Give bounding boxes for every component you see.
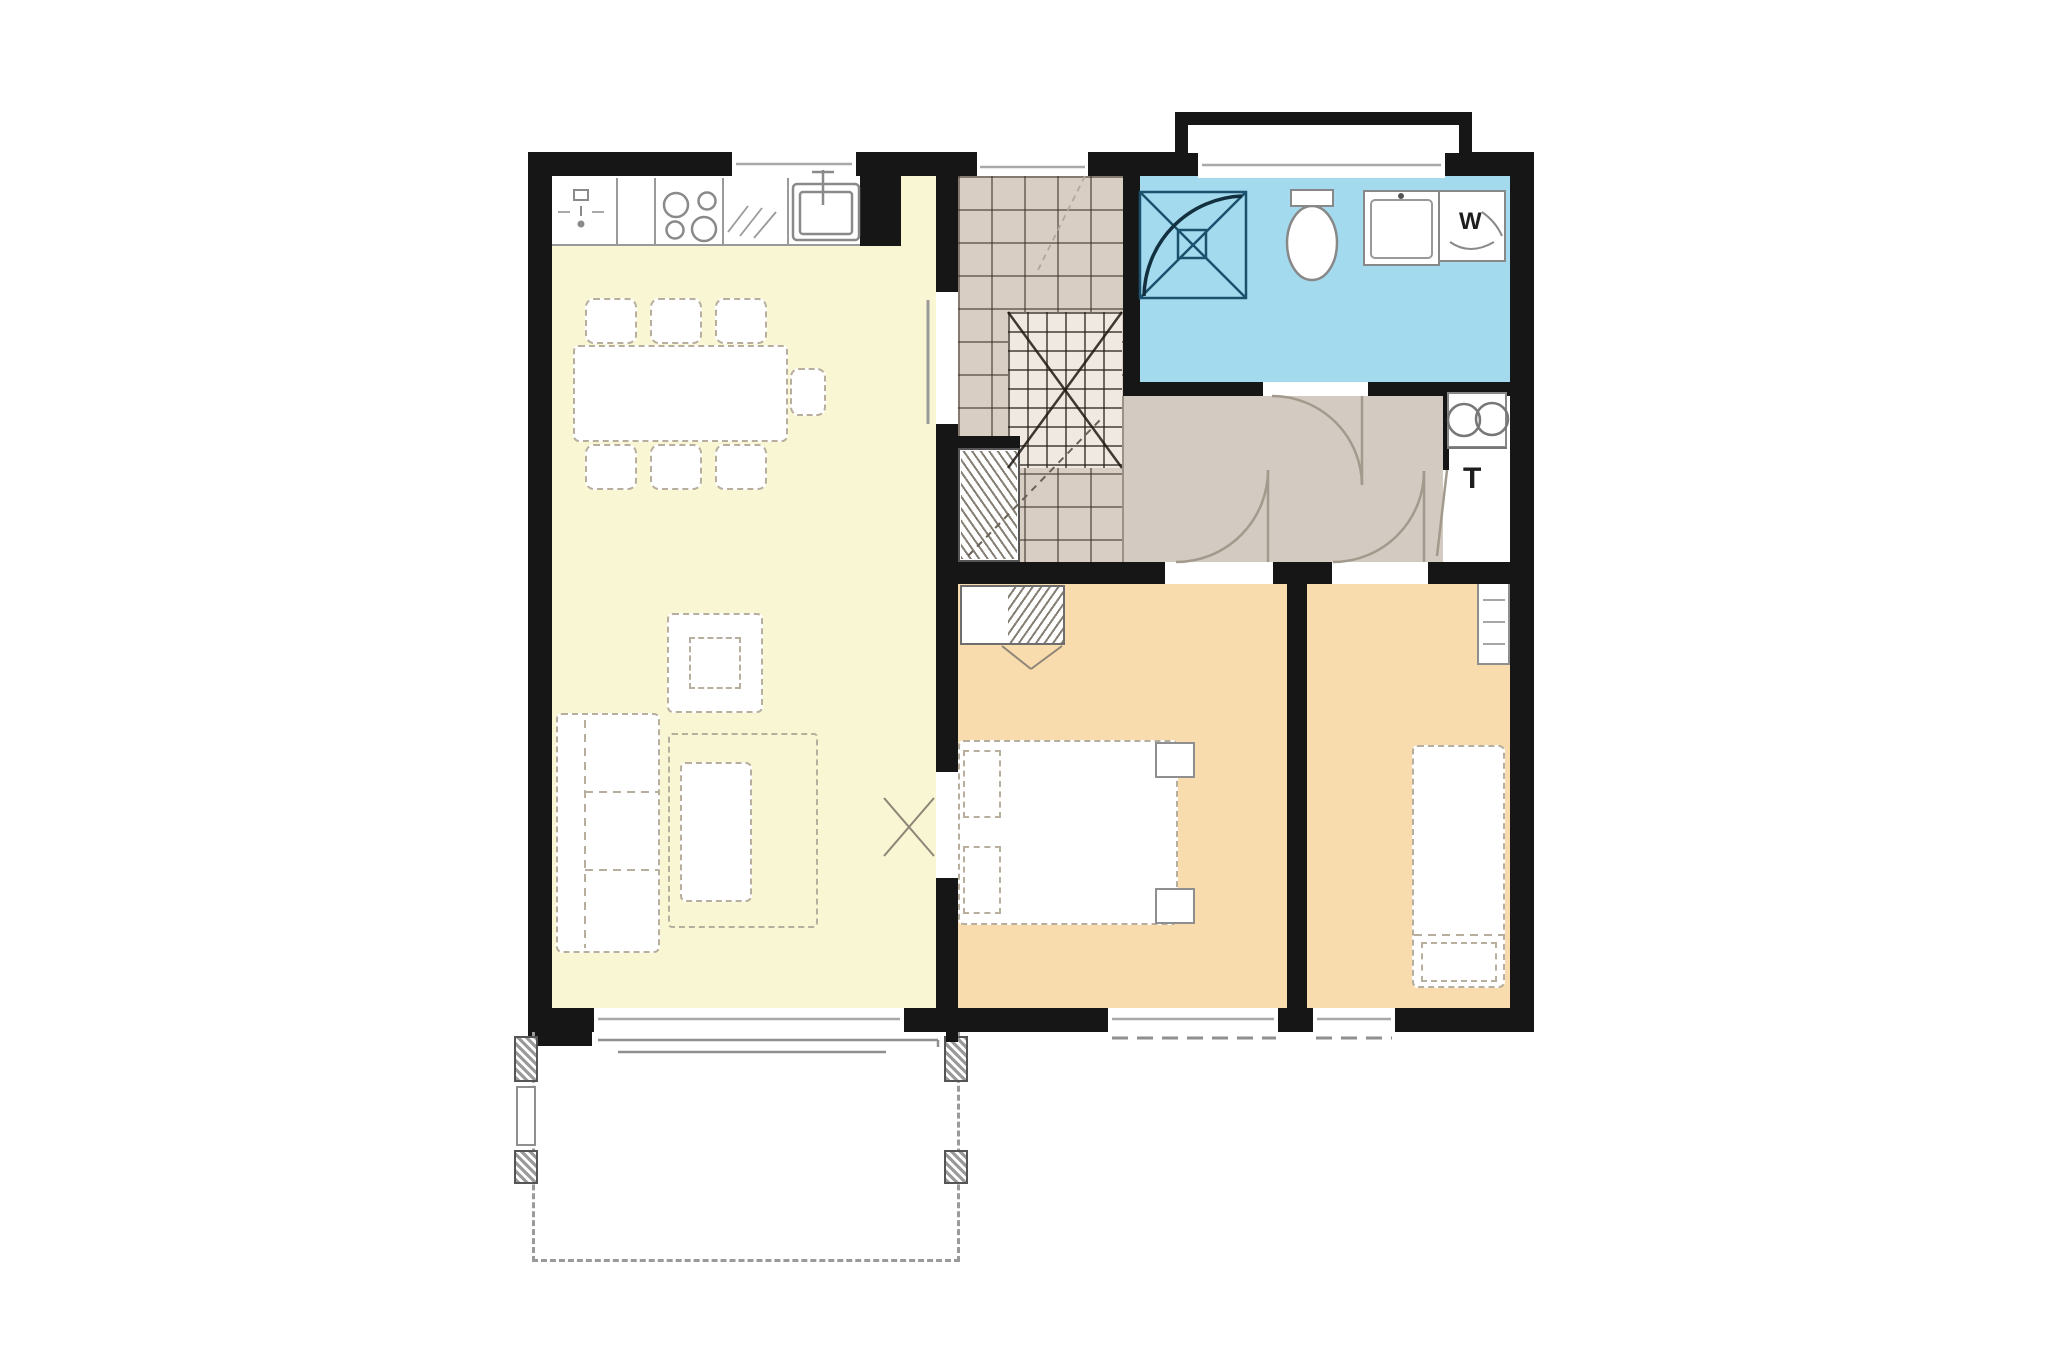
armchair-cushion	[689, 637, 741, 689]
terrace-post	[514, 1150, 538, 1184]
living-terrace-window	[594, 1008, 904, 1032]
bed-pillow	[1421, 942, 1497, 982]
dining-chair	[585, 298, 637, 344]
bedroom2-window	[1313, 1008, 1395, 1032]
vanity-sink	[1363, 190, 1440, 266]
kitchen-window	[732, 152, 856, 176]
bathroom-door-opening	[1263, 382, 1368, 396]
bedroom2-desk	[1477, 572, 1510, 665]
dining-chair	[715, 444, 767, 490]
exterior-wall-left	[528, 152, 552, 1032]
terrace-post-base	[516, 1086, 536, 1146]
dining-chair	[585, 444, 637, 490]
exterior-wall-right	[1510, 152, 1534, 1032]
stair-flight	[1008, 312, 1122, 468]
dining-chair	[715, 298, 767, 344]
nightstand	[1155, 888, 1195, 924]
floor-plan-canvas: W T	[0, 0, 2046, 1367]
kitchen-counter	[552, 176, 860, 246]
washing-machine-label: W	[1459, 208, 1482, 236]
terrace-post	[944, 1036, 968, 1082]
kitchen-end-stub	[860, 170, 901, 246]
bed-pillow	[963, 750, 1001, 818]
living-stairs-opening	[936, 292, 958, 424]
terrace-post	[944, 1150, 968, 1184]
sofa	[556, 713, 660, 953]
tech-appliance	[1447, 392, 1507, 448]
bedroom1-wardrobe-hatch	[1008, 587, 1063, 643]
bedroom1-door-opening	[1165, 562, 1273, 584]
entry-door	[977, 152, 1088, 176]
terrace-corner-nub	[548, 1032, 560, 1042]
bathroom-wall-left	[1123, 176, 1140, 396]
hallway-floor	[1123, 396, 1443, 562]
bathroom-window	[1198, 152, 1445, 178]
understair-closet-hatch	[961, 451, 1017, 559]
dining-table	[573, 345, 788, 442]
terrace-corner-nub	[946, 1032, 958, 1042]
bedroom-divider-wall	[1287, 562, 1307, 1008]
interior-wall-living	[936, 152, 958, 1008]
bedroom1-window	[1108, 1008, 1278, 1032]
stair-closet-stub	[938, 436, 1020, 448]
terrace-post	[514, 1036, 538, 1082]
porch-interior	[1188, 125, 1459, 153]
dining-chair	[650, 444, 702, 490]
living-bedroom1-door-opening	[936, 772, 958, 878]
coffee-table	[680, 762, 752, 902]
terrace-outline	[532, 1032, 960, 1262]
tech-closet-label: T	[1463, 462, 1481, 496]
bed-pillow	[963, 846, 1001, 914]
nightstand	[1155, 742, 1195, 778]
bedroom2-door-opening	[1332, 562, 1428, 584]
dining-chair	[650, 298, 702, 344]
dining-chair	[790, 368, 826, 416]
